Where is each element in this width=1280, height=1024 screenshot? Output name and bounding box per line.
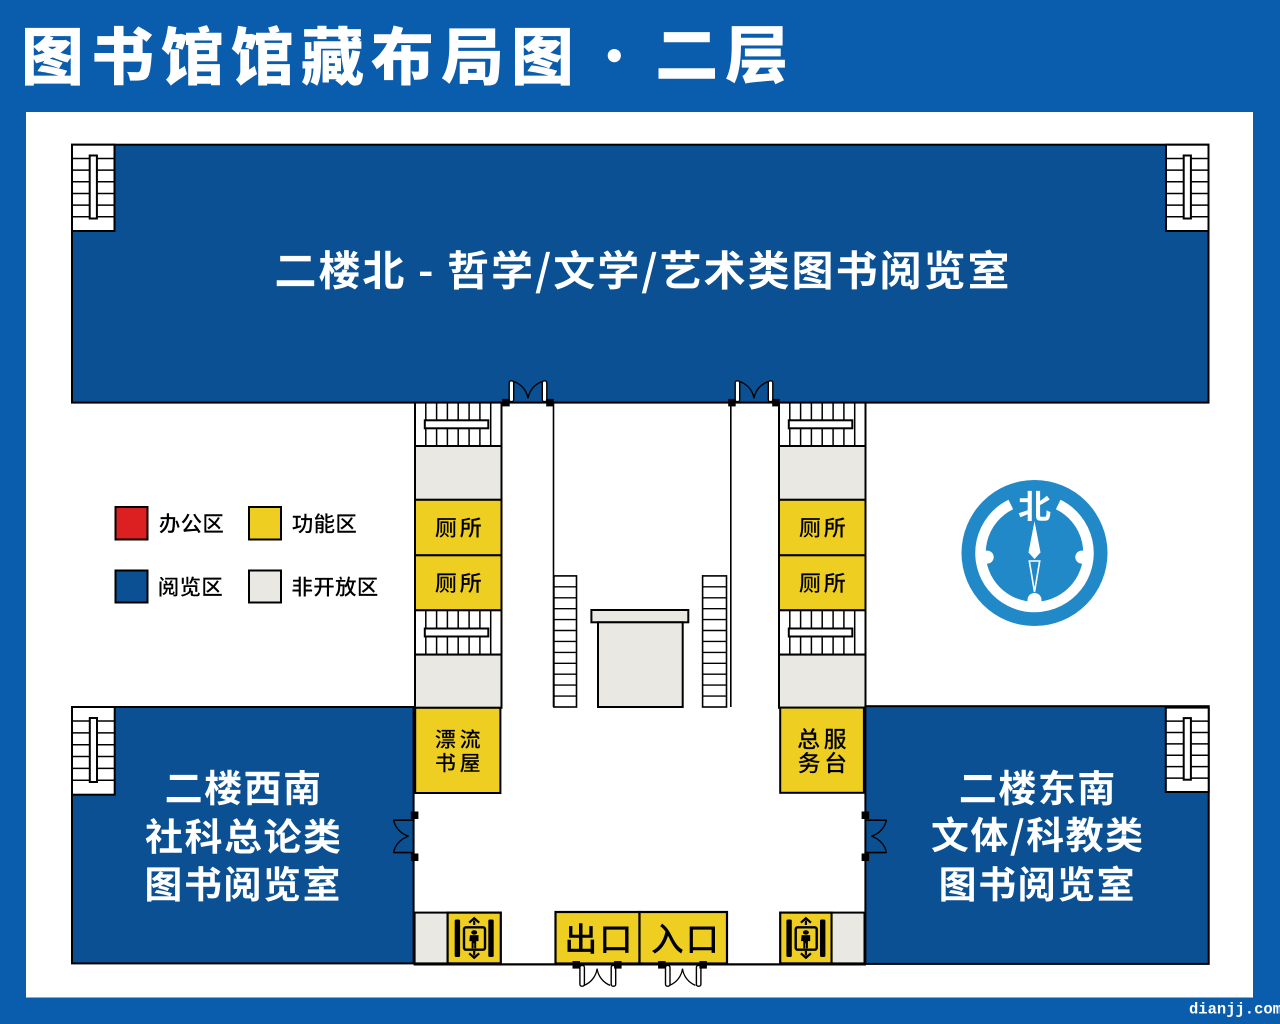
svg-text:dianjj.com: dianjj.com [1189,1001,1280,1019]
